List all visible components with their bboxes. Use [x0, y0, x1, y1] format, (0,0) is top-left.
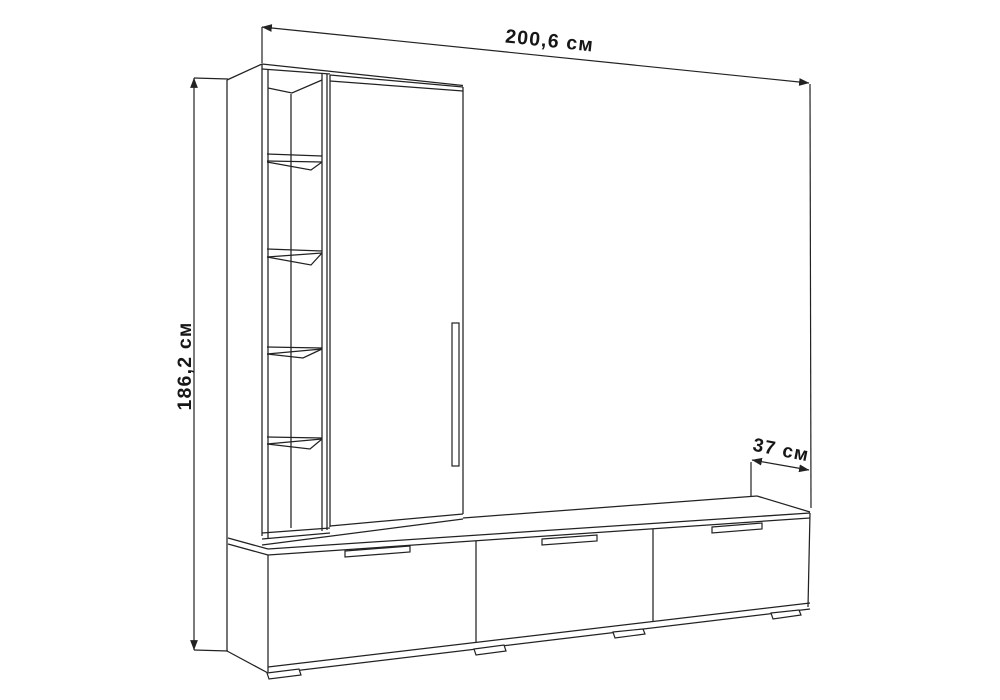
cabinet-side-bottom-edge	[227, 651, 268, 673]
width-dimension-label: 200,6 см	[504, 26, 595, 57]
shelf-4	[267, 437, 322, 449]
width-dimension: 200,6 см	[262, 26, 811, 508]
column-interior-top-edge	[268, 80, 322, 93]
cabinet-top-side-edge	[227, 64, 262, 80]
door-bottom-edge	[330, 514, 463, 526]
bench-foot-1	[267, 669, 301, 679]
column-bottom-edge-top	[262, 528, 330, 533]
shelf-column	[262, 69, 330, 539]
shelf-2	[267, 249, 322, 265]
bench-foot-3	[613, 629, 645, 638]
bench-top-left-depth-edge	[228, 538, 268, 549]
shelf-3	[267, 347, 322, 358]
bench-right-edge	[808, 513, 810, 607]
bench-top-left-depth-thickness	[228, 544, 268, 555]
cabinet-top-back-edge	[262, 64, 463, 86]
width-extension-line-right	[810, 84, 811, 508]
bench-top-thickness-edge	[268, 518, 810, 555]
bench-bottom-edge-top	[268, 603, 810, 667]
shelf-1	[267, 154, 322, 170]
height-tick-top	[194, 78, 228, 79]
diagram-canvas: 200,6 см 186,2 см 37 см	[0, 0, 1000, 700]
drawer-handle-2	[542, 535, 597, 545]
bench-foot-2	[474, 645, 506, 655]
door-handle	[452, 323, 459, 466]
furniture-dimension-diagram: 200,6 см 186,2 см 37 см	[0, 0, 1000, 700]
door-top-back-edge	[330, 75, 463, 87]
bench-foot-4	[771, 610, 801, 619]
height-dimension-label: 186,2 см	[174, 321, 196, 410]
height-dimension: 186,2 см	[174, 78, 228, 651]
tv-bench	[228, 496, 810, 679]
height-tick-bottom	[194, 650, 228, 651]
bench-bottom-edge-bottom	[268, 609, 810, 674]
bench-top-right-depth-edge	[757, 496, 810, 512]
bench-top-back-edge-right	[463, 496, 757, 518]
tall-cabinet	[227, 64, 463, 673]
depth-dimension: 37 см	[751, 435, 811, 497]
wardrobe-door	[330, 75, 463, 527]
door-top-front-edge	[330, 81, 463, 91]
